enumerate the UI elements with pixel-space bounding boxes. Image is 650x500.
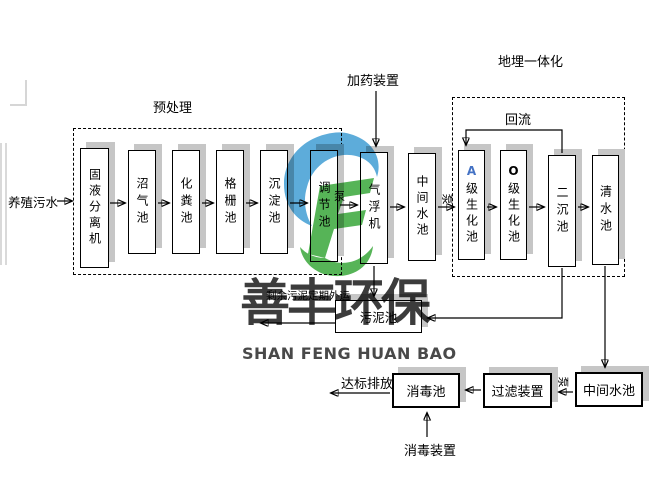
margin-crop-mark: [10, 80, 27, 106]
label-discharge: 达标排放: [341, 373, 393, 392]
label-pretreatment: 预处理: [153, 97, 192, 116]
unit-o-level-bio-tank: O级生化池: [500, 150, 527, 260]
label-reflux: 回流: [505, 109, 531, 128]
pump-label-1: 泵: [334, 188, 345, 204]
unit-filter-device: 过滤装置: [483, 373, 552, 408]
label-influent: 养殖污水: [8, 192, 58, 211]
unit-sludge-tank: 污泥池: [335, 300, 422, 333]
label-dosing-device: 加药装置: [347, 70, 399, 89]
unit-a-level-bio-tank: A级生化池: [458, 150, 485, 260]
unit-septic-tank: 化粪池: [172, 150, 200, 254]
pretreatment-group-box: [73, 128, 342, 275]
unit-regulating-tank: 调节池: [310, 150, 338, 262]
unit-intermediate-tank-1: 中间水池: [408, 153, 436, 261]
process-flow-diagram: 养殖污水 预处理 加药装置 地埋一体化 回流 剩余污泥定期外运 达标排放 消毒装…: [0, 0, 650, 500]
pump-label-2: 泵: [440, 194, 456, 205]
unit-secondary-sedimentation-tank: 二沉池: [548, 155, 576, 267]
page-edge-strip: [0, 143, 7, 265]
label-buried-integration: 地埋一体化: [498, 51, 563, 70]
unit-clear-water-tank: 清水池: [592, 155, 619, 265]
label-disinfection-device: 消毒装置: [404, 440, 456, 459]
unit-intermediate-tank-2: 中间水池: [575, 372, 643, 407]
unit-air-flotation-machine: 气浮机: [360, 152, 388, 264]
unit-sedimentation-tank: 沉淀池: [260, 150, 288, 254]
unit-disinfection-tank: 消毒池: [392, 373, 460, 408]
label-sludge-export: 剩余污泥定期外运: [266, 288, 350, 303]
pump-label-3: 泵: [556, 377, 572, 388]
unit-solid-liquid-separator: 固液分离机: [80, 148, 109, 268]
unit-biogas-tank: 沼气池: [128, 150, 156, 254]
watermark-en-text: SHAN FENG HUAN BAO: [242, 344, 432, 363]
unit-grid-tank: 格栅池: [216, 150, 244, 254]
